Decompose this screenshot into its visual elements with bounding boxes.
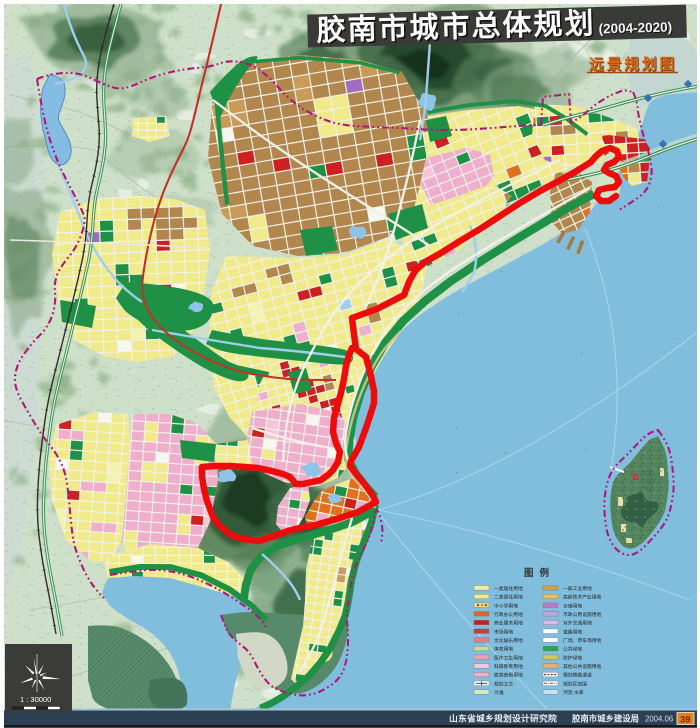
svg-text:对外交通用地: 对外交通用地 — [563, 620, 592, 627]
svg-text:远景规划图: 远景规划图 — [589, 55, 677, 73]
svg-text:中小学用地: 中小学用地 — [494, 602, 518, 609]
svg-text:胶南市城乡建设局: 胶南市城乡建设局 — [572, 714, 639, 724]
svg-text:广场、停车场用地: 广场、停车场用地 — [563, 637, 602, 644]
svg-text:规划立交: 规划立交 — [494, 680, 513, 687]
svg-text:市场用地: 市场用地 — [494, 628, 513, 635]
svg-text:旅游度假用地: 旅游度假用地 — [494, 672, 523, 679]
svg-text:高新技术产业用地: 高新技术产业用地 — [563, 594, 602, 601]
svg-text:1 : 30000: 1 : 30000 — [20, 695, 51, 704]
svg-text:規划铁路通道: 規划铁路通道 — [563, 672, 592, 679]
svg-text:文化娱乐用地: 文化娱乐用地 — [494, 637, 523, 644]
svg-text:山东省城乡规划设计研究院: 山东省城乡规划设计研究院 — [449, 713, 557, 724]
svg-text:图例: 图例 — [524, 567, 555, 579]
svg-text:39: 39 — [680, 714, 691, 725]
svg-text:道路用地: 道路用地 — [563, 628, 582, 635]
svg-text:2004.06: 2004.06 — [645, 715, 673, 724]
svg-text:规划区范围: 规划区范围 — [563, 680, 587, 687]
svg-text:(2004-2020): (2004-2020) — [598, 20, 672, 37]
svg-text:二类居住用地: 二类居住用地 — [494, 594, 523, 601]
svg-text:一般工业用地: 一般工业用地 — [563, 585, 592, 592]
svg-text:商业服务用地: 商业服务用地 — [494, 620, 523, 627]
svg-text:医疗卫生用地: 医疗卫生用地 — [494, 654, 523, 661]
svg-text:一类居住用地: 一类居住用地 — [494, 585, 523, 592]
svg-text:其他公共设施用地: 其他公共设施用地 — [563, 663, 602, 670]
svg-text:沙滩: 沙滩 — [494, 689, 504, 696]
svg-text:市政公用设施用地: 市政公用设施用地 — [563, 611, 602, 618]
svg-text:仓储用地: 仓储用地 — [563, 602, 582, 609]
svg-text:河流 水库: 河流 水库 — [563, 689, 584, 696]
svg-text:体育用地: 体育用地 — [494, 646, 513, 653]
svg-text:科研教育用地: 科研教育用地 — [494, 663, 523, 670]
svg-text:公共绿地: 公共绿地 — [563, 646, 582, 653]
svg-text:行政办公用地: 行政办公用地 — [494, 611, 523, 618]
svg-text:防护绿地: 防护绿地 — [563, 654, 582, 661]
